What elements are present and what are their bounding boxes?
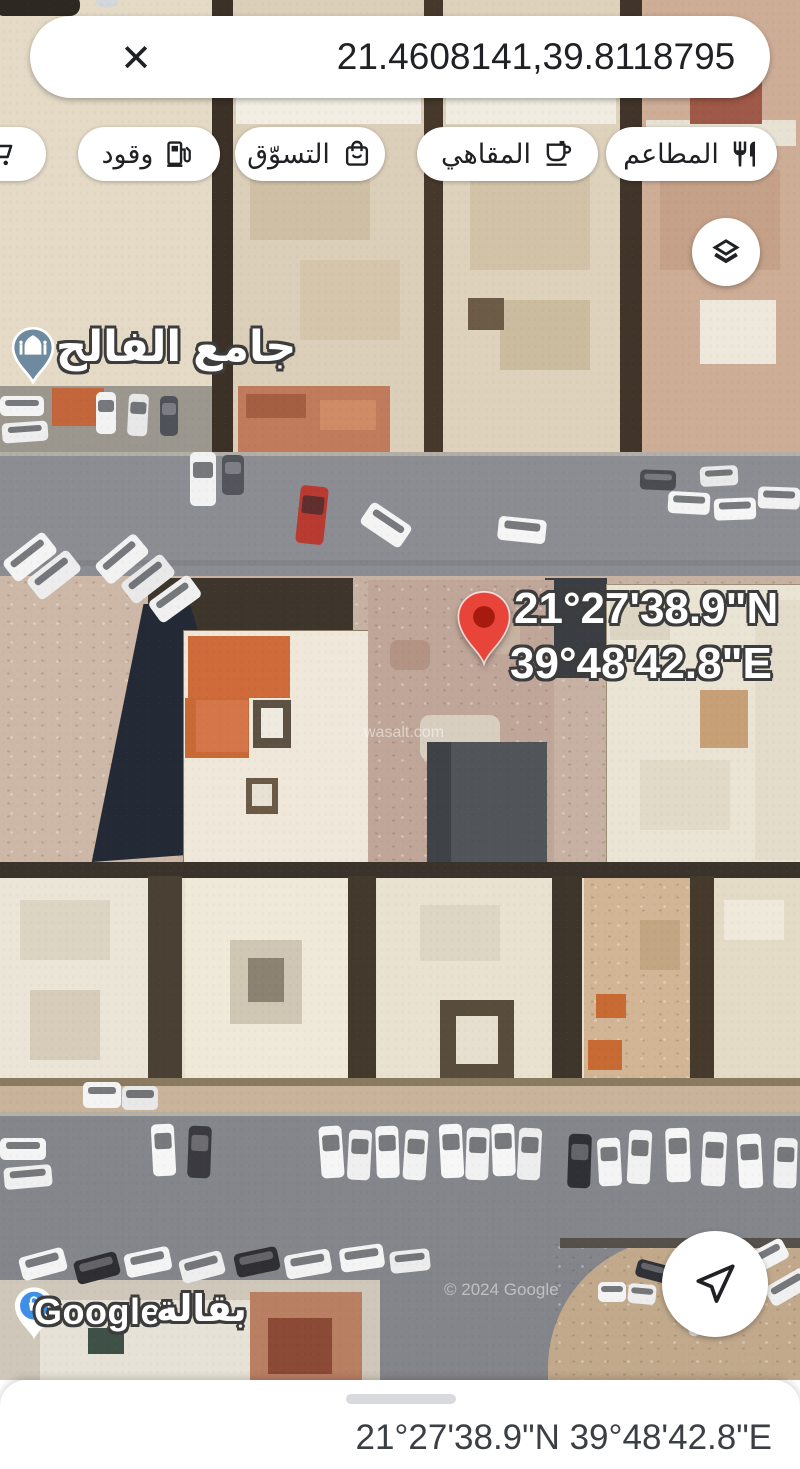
search-bar[interactable]: ✕ 21.4608141,39.8118795 [30,16,770,98]
building [188,636,290,698]
building [456,1016,498,1064]
car [517,1127,543,1180]
car [127,394,149,437]
close-button[interactable]: ✕ [108,30,164,86]
drag-handle[interactable] [346,1394,456,1404]
poi-grocery-label: بقالة [156,1287,247,1330]
car [598,1282,626,1302]
building [500,300,590,370]
car [96,392,116,434]
car [1,420,48,443]
car [627,1283,657,1305]
car [122,1086,158,1110]
shopping-bag-icon [341,138,373,170]
google-logo: Google [34,1291,161,1333]
navigate-button[interactable] [662,1231,768,1337]
pin-longitude-label: 39°48'42.8"E [510,639,772,689]
mosque-icon [10,326,56,384]
chip-fuel-label: وقود [102,139,154,170]
building [640,920,680,970]
layers-icon [708,234,744,270]
chip-cafes[interactable]: المقاهي [417,127,598,181]
bottom-sheet[interactable]: 21°27'38.9"N 39°48'42.8"E [0,1380,800,1469]
building [468,298,504,330]
building [588,1040,622,1070]
building [148,876,182,1108]
restaurant-icon [730,139,760,169]
google-maps-screen: wasalt.com جامع الفالح 21°27'38.9"N 39°4… [0,0,800,1469]
copyright-watermark: © 2024 Google [444,1280,559,1300]
building [420,905,500,961]
pin-latitude-label: 21°27'38.9"N [514,584,778,634]
car [497,516,547,545]
building [584,878,690,1108]
car [597,1137,622,1186]
car [190,452,216,506]
search-query: 21.4608141,39.8118795 [330,16,742,98]
shopping-cart-icon [0,138,16,170]
building [30,990,100,1060]
building [0,862,800,878]
building [552,876,582,1108]
car [491,1124,516,1177]
building [261,708,283,738]
satellite-map[interactable]: wasalt.com جامع الفالح 21°27'38.9"N 39°4… [0,0,800,1380]
building [236,94,421,124]
car [187,1126,212,1179]
red-pin-icon [455,589,513,673]
car [222,455,244,495]
building [390,640,430,670]
satellite-imagery [0,0,800,1380]
building [427,742,451,864]
car [0,396,44,416]
building [248,958,284,1002]
building [446,94,616,124]
car [347,1129,373,1180]
close-icon: ✕ [120,36,152,81]
chip-restaurants[interactable]: المطاعم [606,127,777,181]
car [151,1123,177,1176]
building [0,0,80,16]
building [20,900,110,960]
building [300,260,400,340]
chip-shopping-label: التسوّق [247,139,330,170]
chip-fuel[interactable]: وقود [78,127,220,181]
car [160,396,178,436]
building [348,876,376,1108]
car [3,1164,53,1190]
building [320,400,376,430]
building [268,1318,332,1374]
building [700,300,776,364]
car [665,1128,691,1183]
layers-button[interactable] [692,218,760,286]
building [596,994,626,1018]
car [375,1126,400,1179]
building [252,784,272,806]
car [714,497,757,520]
car [83,1082,121,1108]
car [737,1133,764,1188]
building [640,760,730,830]
car [627,1129,653,1184]
building [690,876,714,1108]
car [667,491,710,515]
building [700,690,748,748]
car [318,1125,345,1178]
car [567,1134,592,1189]
coffee-cup-icon [542,138,574,170]
car [402,1129,428,1180]
sheet-coordinates: 21°27'38.9"N 39°48'42.8"E [355,1418,772,1458]
building [724,900,784,940]
poi-mosque-label: جامع الفالح [56,322,296,372]
navigation-arrow-icon [690,1259,740,1309]
car [701,1131,728,1186]
car [700,465,739,487]
wasalt-watermark: wasalt.com [364,724,444,742]
chip-restaurants-label: المطاعم [623,139,719,170]
building [0,1112,800,1116]
car [773,1138,798,1189]
building [196,700,248,752]
building [0,452,800,456]
car [0,1138,46,1160]
car [758,486,800,509]
car [465,1128,490,1181]
car [439,1123,465,1178]
car [389,1248,431,1274]
gas-station-icon [164,138,196,170]
chip-cafes-label: المقاهي [441,139,531,170]
building [246,394,306,418]
car [640,469,677,490]
chip-shopping[interactable]: التسوّق [235,127,385,181]
